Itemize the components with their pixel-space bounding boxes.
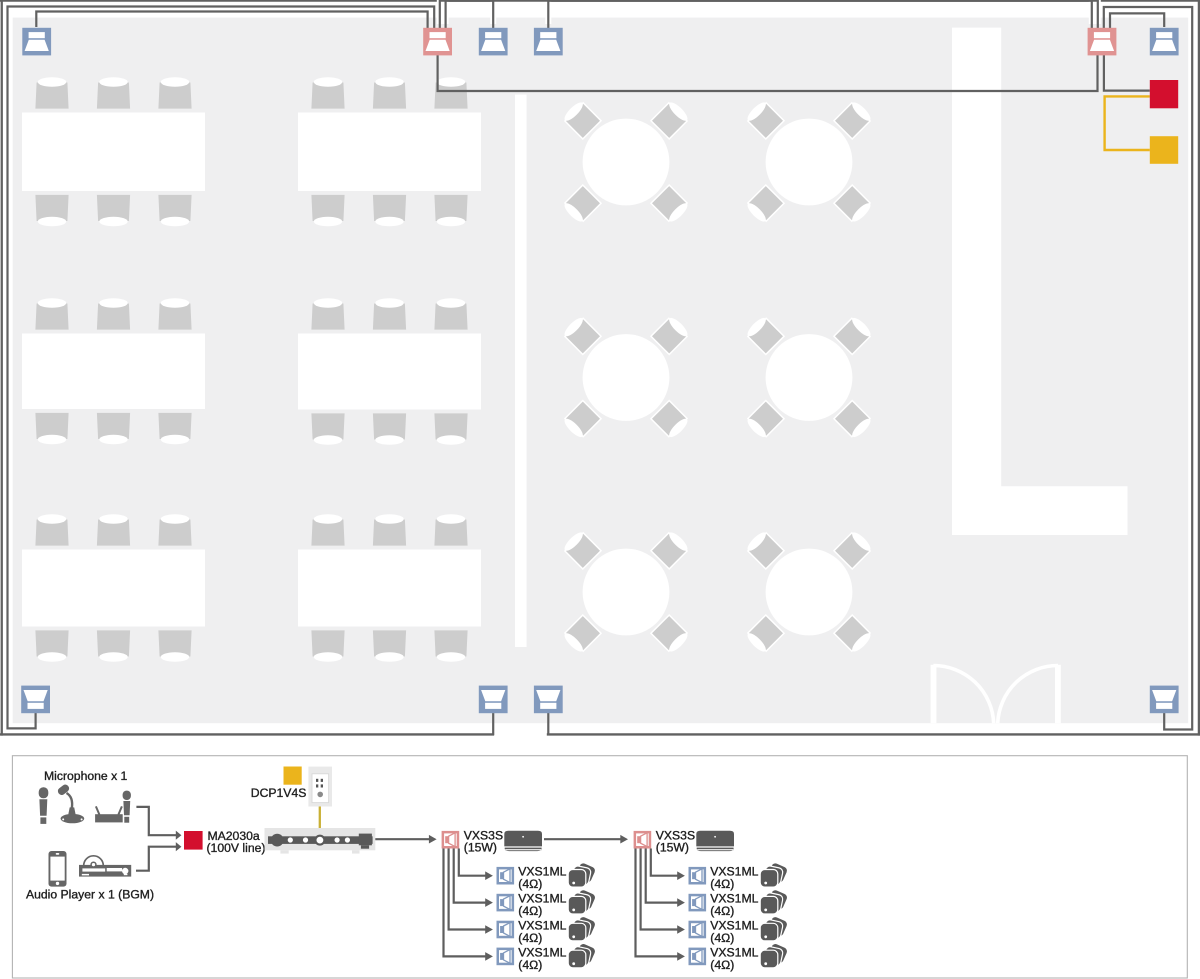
svg-text:(4Ω): (4Ω) bbox=[710, 958, 734, 972]
svg-text:(4Ω): (4Ω) bbox=[518, 904, 542, 918]
svg-text:Audio Player x 1 (BGM): Audio Player x 1 (BGM) bbox=[26, 887, 154, 901]
svg-text:(4Ω): (4Ω) bbox=[710, 877, 734, 891]
svg-text:(4Ω): (4Ω) bbox=[710, 931, 734, 945]
svg-text:(15W): (15W) bbox=[656, 841, 689, 855]
svg-text:Microphone x 1: Microphone x 1 bbox=[44, 769, 128, 783]
svg-text:(4Ω): (4Ω) bbox=[710, 904, 734, 918]
svg-text:(4Ω): (4Ω) bbox=[518, 931, 542, 945]
svg-text:(4Ω): (4Ω) bbox=[518, 877, 542, 891]
svg-text:(100V line): (100V line) bbox=[207, 841, 266, 855]
svg-text:(15W): (15W) bbox=[464, 841, 497, 855]
svg-text:(4Ω): (4Ω) bbox=[518, 958, 542, 972]
svg-text:DCP1V4S: DCP1V4S bbox=[251, 786, 307, 800]
